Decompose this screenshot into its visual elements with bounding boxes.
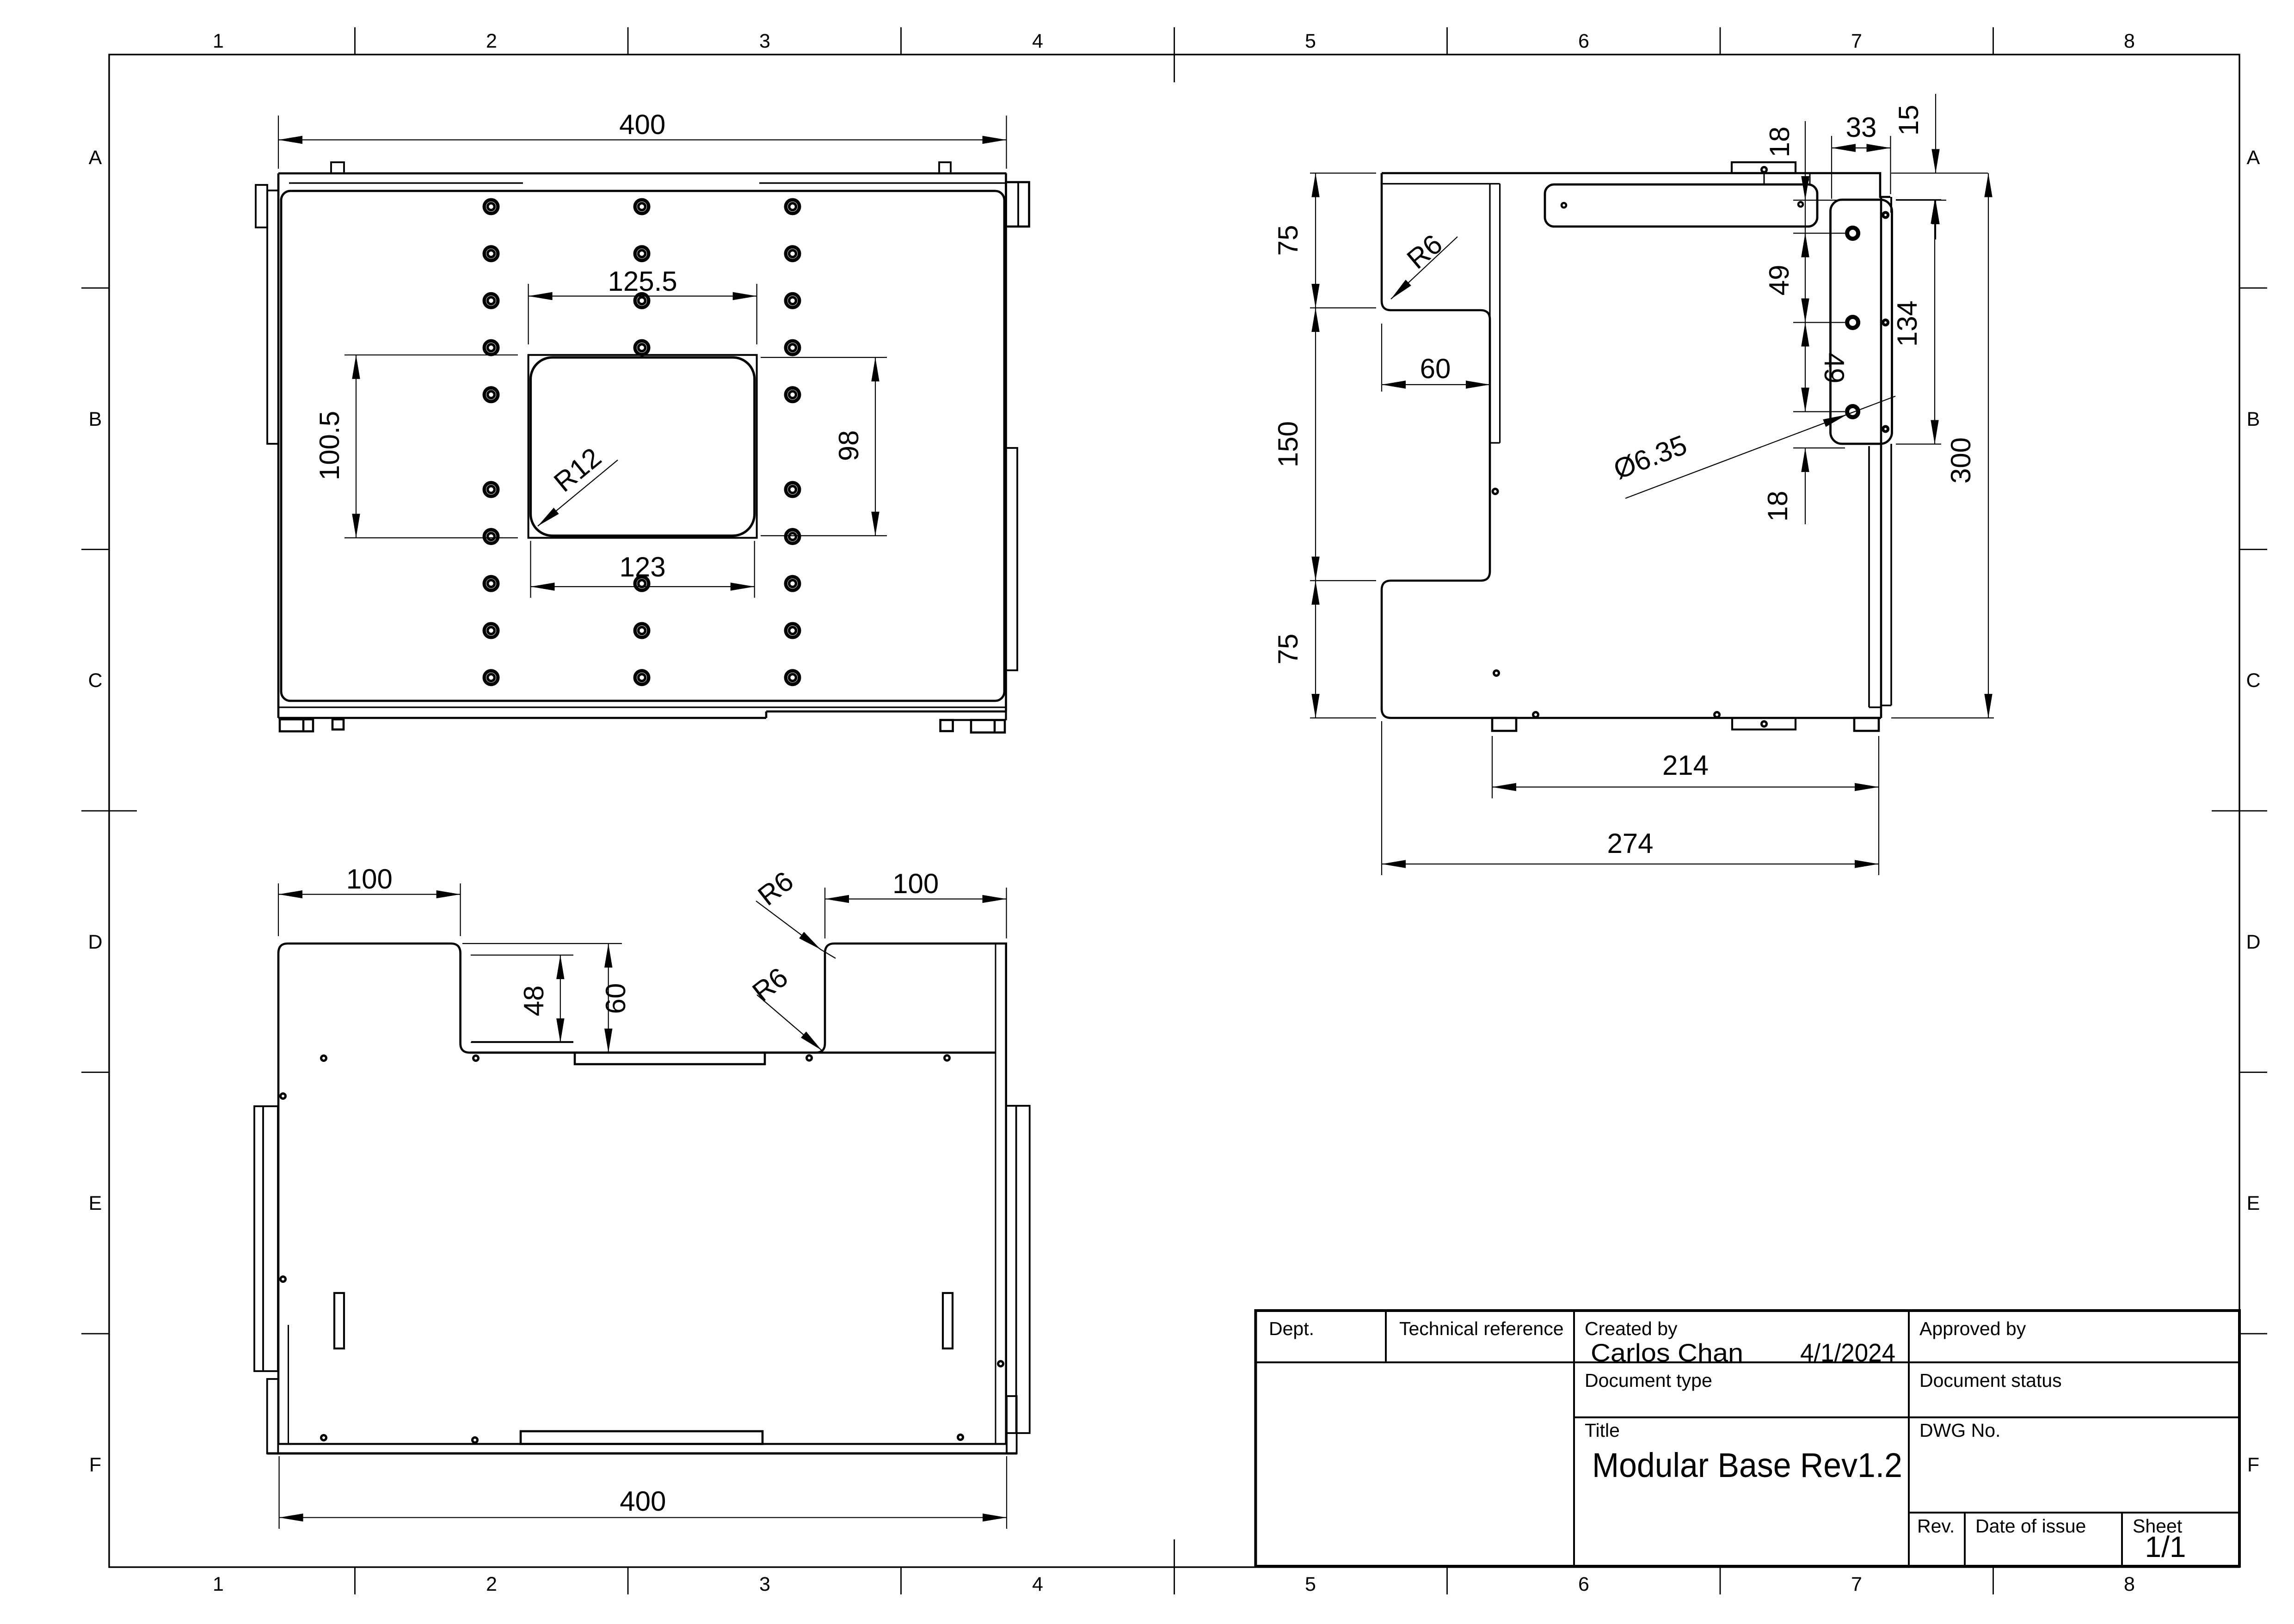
svg-text:134: 134 — [1892, 300, 1923, 347]
svg-text:123: 123 — [620, 552, 666, 582]
svg-text:C: C — [88, 669, 102, 692]
svg-text:100.5: 100.5 — [314, 411, 345, 480]
svg-text:A: A — [89, 147, 102, 169]
svg-text:Carlos Chan: Carlos Chan — [1591, 1338, 1743, 1367]
svg-text:7: 7 — [1851, 30, 1862, 52]
svg-text:Title: Title — [1585, 1420, 1620, 1441]
svg-text:400: 400 — [619, 109, 665, 140]
svg-text:33: 33 — [1846, 112, 1877, 143]
svg-text:B: B — [89, 408, 102, 430]
svg-text:400: 400 — [620, 1486, 666, 1517]
svg-text:D: D — [2246, 931, 2260, 953]
svg-text:18: 18 — [1762, 491, 1793, 522]
svg-text:6: 6 — [1578, 1573, 1589, 1595]
svg-text:Document type: Document type — [1585, 1370, 1712, 1391]
svg-text:6: 6 — [1578, 30, 1589, 52]
svg-text:3: 3 — [759, 30, 770, 52]
svg-text:4: 4 — [1032, 30, 1043, 52]
svg-text:E: E — [89, 1192, 102, 1214]
svg-text:Approved by: Approved by — [1919, 1318, 2026, 1339]
svg-text:4/1/2024: 4/1/2024 — [1800, 1338, 1895, 1367]
svg-text:125.5: 125.5 — [608, 266, 677, 297]
svg-text:3: 3 — [759, 1573, 770, 1595]
svg-text:49: 49 — [1819, 353, 1850, 384]
svg-text:75: 75 — [1273, 634, 1304, 665]
svg-text:Created by: Created by — [1585, 1318, 1678, 1339]
svg-text:49: 49 — [1764, 265, 1795, 296]
svg-text:18: 18 — [1764, 127, 1795, 158]
svg-text:150: 150 — [1273, 421, 1304, 467]
svg-text:2: 2 — [486, 30, 497, 52]
svg-text:Technical reference: Technical reference — [1399, 1318, 1564, 1339]
svg-text:Date of issue: Date of issue — [1975, 1515, 2086, 1537]
svg-text:Rev.: Rev. — [1917, 1515, 1955, 1537]
svg-text:60: 60 — [600, 983, 631, 1014]
svg-text:1: 1 — [213, 1573, 224, 1595]
svg-text:E: E — [2247, 1192, 2260, 1214]
svg-text:4: 4 — [1032, 1573, 1043, 1595]
svg-text:48: 48 — [518, 986, 549, 1017]
svg-text:5: 5 — [1305, 1573, 1316, 1595]
svg-text:D: D — [88, 931, 102, 953]
svg-text:8: 8 — [2124, 30, 2135, 52]
svg-text:7: 7 — [1851, 1573, 1862, 1595]
svg-text:214: 214 — [1662, 750, 1709, 781]
svg-text:60: 60 — [1420, 353, 1451, 384]
svg-text:F: F — [89, 1454, 101, 1476]
svg-text:100: 100 — [346, 864, 393, 895]
svg-text:300: 300 — [1945, 437, 1976, 484]
svg-text:1: 1 — [213, 30, 224, 52]
svg-text:DWG No.: DWG No. — [1919, 1420, 2000, 1441]
svg-text:1/1: 1/1 — [2145, 1530, 2186, 1563]
svg-text:274: 274 — [1607, 828, 1653, 859]
svg-text:2: 2 — [486, 1573, 497, 1595]
svg-text:15: 15 — [1893, 105, 1924, 136]
svg-text:A: A — [2247, 147, 2260, 169]
svg-text:B: B — [2247, 408, 2260, 430]
svg-text:F: F — [2247, 1454, 2259, 1476]
svg-text:Dept.: Dept. — [1269, 1318, 1314, 1339]
svg-text:8: 8 — [2124, 1573, 2135, 1595]
svg-text:98: 98 — [833, 430, 864, 461]
svg-text:5: 5 — [1305, 30, 1316, 52]
svg-text:100: 100 — [892, 868, 939, 899]
svg-text:C: C — [2246, 669, 2260, 692]
svg-text:Document status: Document status — [1919, 1370, 2062, 1391]
svg-text:75: 75 — [1273, 225, 1304, 256]
svg-text:Modular Base Rev1.2: Modular Base Rev1.2 — [1592, 1446, 1902, 1484]
